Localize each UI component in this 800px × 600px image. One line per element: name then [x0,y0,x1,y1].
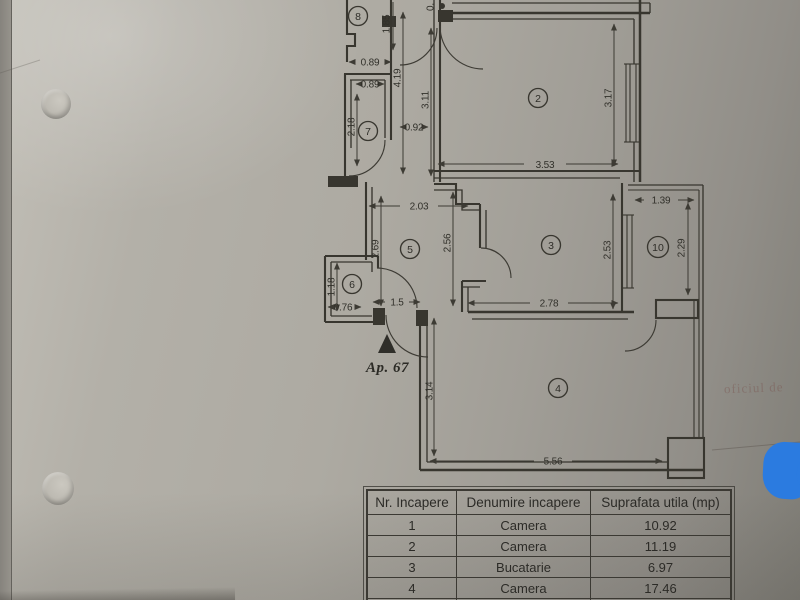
table-row: 4 Camera 17.46 [368,577,730,598]
svg-text:4.19: 4.19 [393,68,404,87]
svg-text:2.78: 2.78 [540,299,559,310]
cell-name: Camera [457,578,591,598]
dim-4-19: 4.19 [393,12,404,174]
dim-0-92: 0.92 [400,123,428,134]
entrance-triangle-icon [378,334,396,353]
cell-area: 6.97 [591,557,730,577]
svg-text:3: 3 [548,240,554,252]
dim-2-78: 2.78 [468,299,618,310]
dim-partial-top: 0. [426,3,437,11]
cell-nr: 1 [368,515,457,535]
dim-1-39: 1.39 [635,196,694,207]
svg-text:2.18: 2.18 [347,117,358,136]
svg-text:10: 10 [652,242,664,254]
dim-0-89-b: 0.89 [356,80,384,91]
dim-3-17: 3.17 [604,24,615,166]
dim-3-14: 3.14 [425,318,436,456]
room-marker-4: 4 [549,379,568,398]
svg-text:0.89: 0.89 [361,58,380,69]
svg-text:1.18: 1.18 [327,277,338,296]
area-table: Nr. Incapere Denumire incapere Suprafata… [366,489,732,600]
cell-area: 11.19 [591,536,730,556]
cell-nr: 3 [368,557,457,577]
room-marker-7: 7 [359,122,378,141]
cell-name: Camera [457,536,591,556]
apartment-label: Ap. 67 [365,360,409,376]
cell-name: Camera [457,515,591,535]
scanned-floor-plan-photo: 1.85 0.89 0.89 2.18 4.19 3. [0,0,800,600]
svg-text:2.56: 2.56 [443,233,454,252]
table-row: 3 Bucatarie 6.97 [368,556,730,577]
dim-0-76: 0.76 [328,303,361,314]
svg-text:0.76: 0.76 [334,303,353,314]
svg-text:1.39: 1.39 [652,196,671,207]
dim-2-56: 2.56 [443,192,454,306]
svg-text:2.69: 2.69 [371,239,382,258]
room-marker-6: 6 [343,275,362,294]
room-marker-2: 2 [529,89,548,108]
dim-1-5: 1.5 [373,298,420,309]
svg-text:3.14: 3.14 [425,381,436,400]
cell-nr: 4 [368,578,457,598]
header-cell-area: Suprafata utila (mp) [591,491,730,514]
room-marker-10: 10 [648,237,669,258]
cell-area: 10.92 [591,515,730,535]
dim-0-89-a: 0.89 [349,58,391,69]
svg-text:5: 5 [407,244,413,256]
svg-text:1.5: 1.5 [390,298,404,309]
svg-text:0.89: 0.89 [361,80,380,91]
cell-name: Bucatarie [457,557,591,577]
dim-2-18: 2.18 [347,94,358,166]
svg-text:7: 7 [365,126,371,138]
svg-text:3.53: 3.53 [536,160,555,171]
table-row: 1 Camera 10.92 [368,514,730,535]
header-cell-nr: Nr. Incapere [368,491,457,514]
svg-text:2.53: 2.53 [603,240,614,259]
room-marker-5: 5 [401,240,420,259]
svg-text:8: 8 [355,11,361,23]
room-marker-3: 3 [542,236,561,255]
svg-text:4: 4 [555,383,561,395]
table-header-row: Nr. Incapere Denumire incapere Suprafata… [368,491,730,514]
svg-text:5.56: 5.56 [544,457,563,468]
svg-text:3.17: 3.17 [604,88,615,107]
svg-text:0.92: 0.92 [405,123,424,134]
dim-3-53: 3.53 [438,160,618,171]
svg-text:2.03: 2.03 [410,202,429,213]
svg-text:3.11: 3.11 [421,90,432,109]
cell-nr: 2 [368,536,457,556]
table-row: 2 Camera 11.19 [368,535,730,556]
svg-text:6: 6 [349,279,355,291]
entrance-group: Ap. 67 [365,334,409,376]
svg-text:2: 2 [535,93,541,105]
room-marker-8: 8 [349,7,368,26]
header-cell-name: Denumire incapere [457,491,591,514]
walls-layer [325,0,704,478]
svg-text:1.85: 1.85 [382,14,393,33]
bleed-through-text: oficiul de [724,379,784,396]
dim-2-53: 2.53 [603,194,614,309]
svg-text:0.: 0. [426,3,437,11]
cell-area: 17.46 [591,578,730,598]
svg-text:2.29: 2.29 [677,238,688,257]
dim-2-29: 2.29 [677,203,689,295]
